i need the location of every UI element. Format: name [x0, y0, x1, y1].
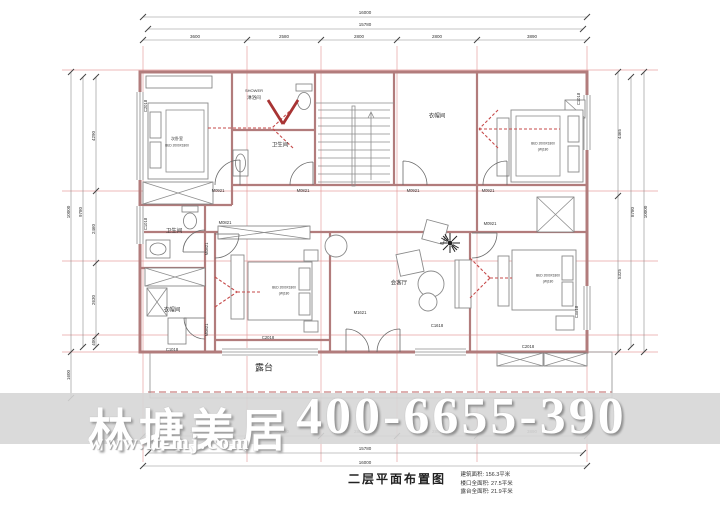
room-label-shower: 淋浴间	[247, 96, 261, 101]
dim-top-total: 16000	[359, 11, 372, 16]
dim-left-terrace: 1600	[67, 370, 72, 380]
dim-top-bay: 2800	[354, 35, 364, 40]
dim-right-inner: 8780	[631, 207, 636, 217]
door-label: M0821	[205, 243, 209, 256]
room-label-bathroom-top: 卫生间	[272, 143, 289, 149]
dim-left-total: 10000	[67, 206, 72, 219]
bed-label: BED 2000X1800	[272, 286, 296, 289]
room-label-cloakroom-left: 衣帽间	[164, 308, 181, 314]
door-label: M0921	[212, 189, 225, 193]
dim-bottom-total: 16000	[359, 461, 372, 466]
bed-label: (W)180	[279, 292, 289, 295]
window-label: C1018	[144, 218, 148, 230]
window-label: C2018	[262, 336, 274, 340]
window-label: C0818	[575, 306, 579, 318]
dim-left-bay: 4290	[92, 131, 97, 141]
door-label: M0821	[205, 324, 209, 337]
dim-left-bay: 400	[92, 338, 97, 346]
drawing-notes: 建筑面积: 156.3平米 楼口全面积: 27.5平米 露台全面积: 21.9平…	[460, 470, 512, 497]
room-label-cloakroom-top: 衣帽间	[429, 114, 446, 120]
dim-left-inner: 9780	[79, 207, 84, 217]
dim-top-bay: 3600	[190, 35, 200, 40]
door-label: M0921	[482, 189, 495, 193]
floor-plan-page: 1600015780360025802800280038903600258028…	[0, 0, 720, 509]
room-label-terrace: 露台	[255, 364, 273, 373]
note-stair-area: 楼口全面积: 27.5平米	[460, 480, 512, 489]
window-label: C1018	[166, 348, 178, 352]
watermark-phone: 400-6655-390	[296, 387, 627, 446]
window-label: C2018	[522, 345, 534, 349]
drawing-title: 二层平面布置图	[348, 470, 446, 487]
note-building-area: 建筑面积: 156.3平米	[460, 471, 512, 480]
bed-label: (W)180	[543, 280, 553, 283]
room-label-lounge: 会客厅	[391, 281, 408, 287]
door-label: M1621	[354, 311, 367, 315]
window-label: C1018	[577, 93, 581, 105]
dim-right-bay: 5325	[618, 269, 623, 279]
room-label-shower-en: SHOWER	[245, 89, 263, 93]
dim-bottom-inner: 15780	[359, 447, 372, 452]
dim-left-bay: 2630	[92, 295, 97, 305]
door-label: M0821	[219, 221, 232, 225]
title-block: 二层平面布置图 建筑面积: 156.3平米 楼口全面积: 27.5平米 露台全面…	[348, 470, 513, 497]
dim-top-bay: 2580	[279, 35, 289, 40]
door-label: M0921	[484, 222, 497, 226]
bed-label: BED 2000X1800	[165, 144, 189, 147]
note-terrace-area: 露台全面积: 21.9平米	[460, 488, 512, 497]
door-label: M0921	[407, 189, 420, 193]
room-label-bathroom-left: 卫生间	[166, 229, 183, 235]
bed-label: BED 2000X1800	[531, 142, 555, 145]
door-label: M0821	[297, 189, 310, 193]
dim-top-inner: 15780	[359, 23, 372, 28]
dim-left-bay: 2460	[92, 224, 97, 234]
dim-top-bay: 2800	[432, 35, 442, 40]
dim-right-bay: 4465	[618, 129, 623, 139]
bed-label: (W)180	[538, 148, 548, 151]
bed-label: BED 2000X1800	[536, 274, 560, 277]
dim-top-bay: 3890	[527, 35, 537, 40]
watermark-url: www.lt-mj.com	[88, 430, 250, 455]
dim-right-total: 10000	[644, 206, 649, 219]
window-label: C2018	[144, 100, 148, 112]
bed-label: 次卧室	[171, 137, 183, 141]
window-label: C1618	[431, 324, 443, 328]
